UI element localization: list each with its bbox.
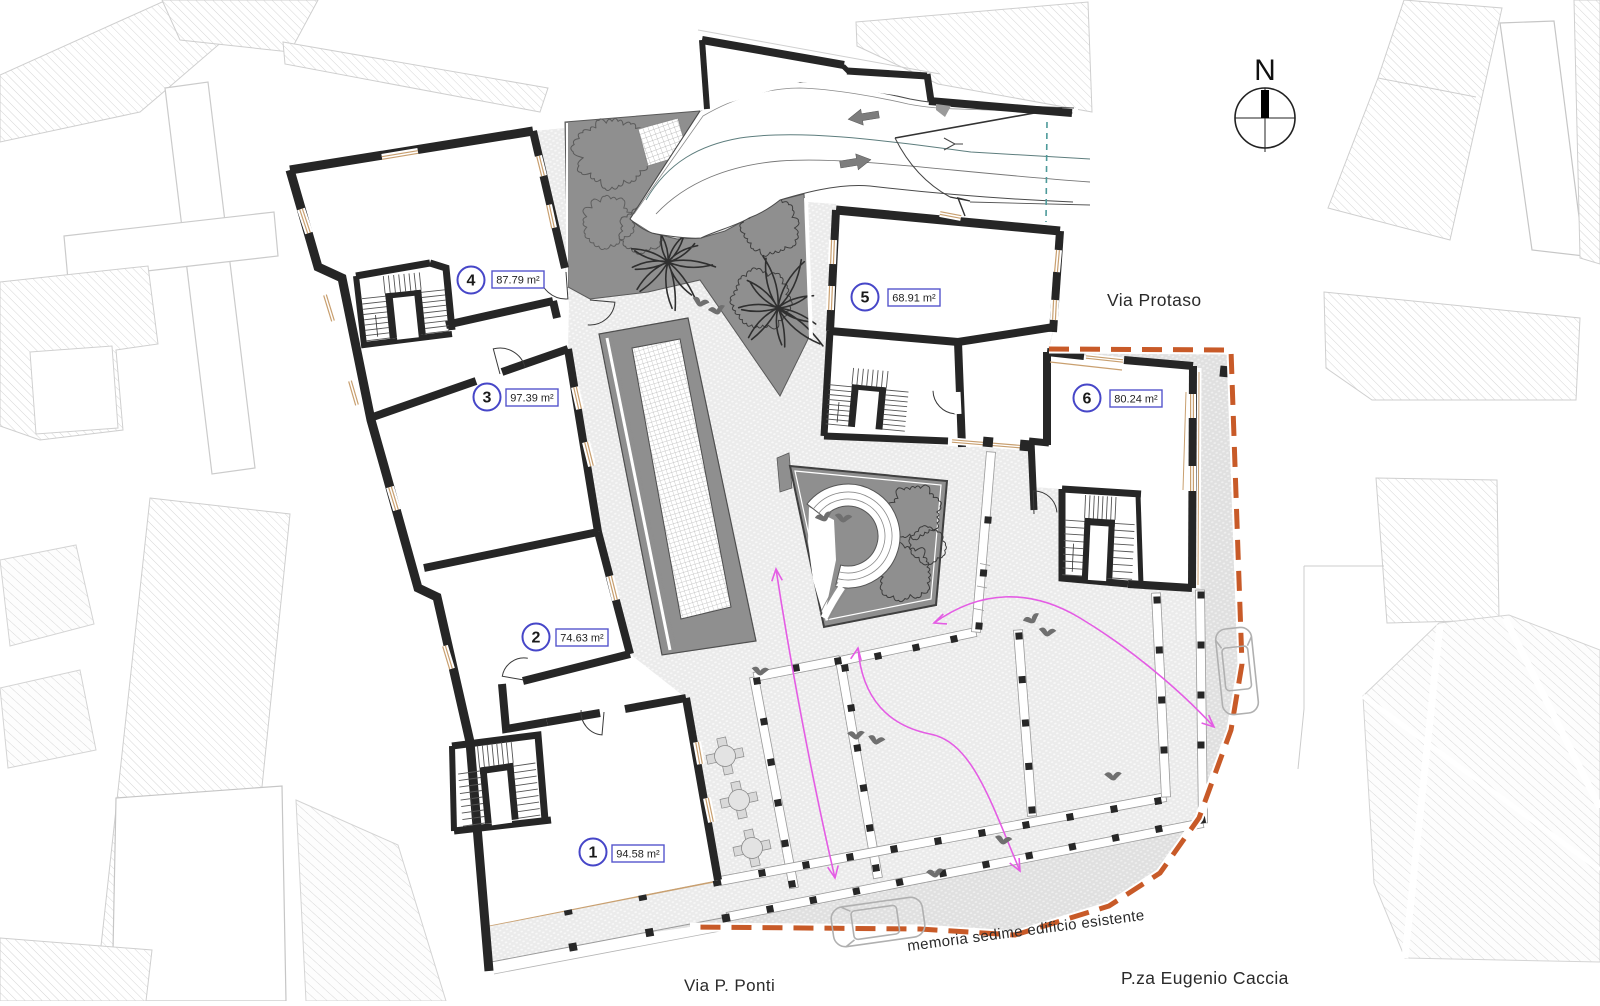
svg-text:87.79 m²: 87.79 m² xyxy=(496,275,540,287)
svg-text:N: N xyxy=(1254,54,1276,87)
svg-text:3: 3 xyxy=(483,390,492,407)
svg-text:2: 2 xyxy=(532,630,541,647)
svg-text:4: 4 xyxy=(467,273,476,290)
svg-text:Via P. Ponti: Via P. Ponti xyxy=(684,976,775,995)
svg-text:1: 1 xyxy=(589,845,598,862)
svg-text:5: 5 xyxy=(861,290,870,307)
svg-text:94.58 m²: 94.58 m² xyxy=(616,849,660,861)
svg-text:74.63 m²: 74.63 m² xyxy=(560,633,604,645)
svg-text:68.91 m²: 68.91 m² xyxy=(892,293,936,305)
svg-text:Via Protaso: Via Protaso xyxy=(1107,290,1202,310)
svg-text:P.za Eugenio Caccia: P.za Eugenio Caccia xyxy=(1121,968,1289,988)
svg-text:80.24 m²: 80.24 m² xyxy=(1114,394,1158,406)
svg-text:97.39 m²: 97.39 m² xyxy=(510,393,554,405)
svg-text:6: 6 xyxy=(1083,391,1092,408)
